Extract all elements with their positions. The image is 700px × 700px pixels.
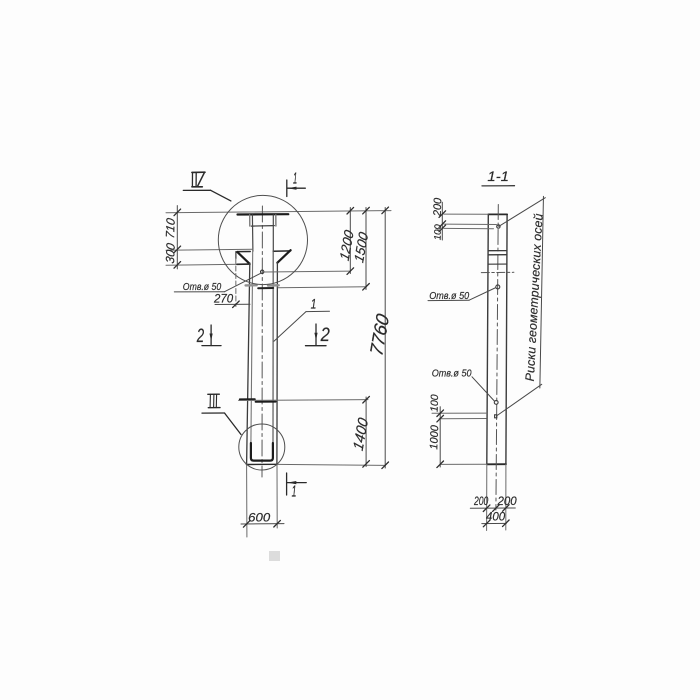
svg-text:Отв.ø 50: Отв.ø 50 <box>183 281 222 293</box>
svg-text:400: 400 <box>486 512 506 524</box>
svg-text:300: 300 <box>163 242 178 265</box>
svg-text:1400: 1400 <box>351 416 372 453</box>
svg-text:1: 1 <box>293 171 297 188</box>
svg-text:200: 200 <box>497 496 518 508</box>
svg-text:1-1: 1-1 <box>487 168 509 184</box>
svg-text:1: 1 <box>292 484 297 501</box>
svg-text:200: 200 <box>432 197 445 218</box>
svg-text:1000: 1000 <box>428 424 441 450</box>
svg-text:Отв.ø 50: Отв.ø 50 <box>432 367 472 379</box>
svg-text:2: 2 <box>320 325 330 346</box>
svg-text:200: 200 <box>473 496 488 508</box>
svg-text:7760: 7760 <box>366 311 393 359</box>
svg-text:100: 100 <box>429 394 442 412</box>
svg-text:Отв.ø 50: Отв.ø 50 <box>429 290 469 302</box>
svg-text:270: 270 <box>213 294 234 306</box>
svg-text:600: 600 <box>248 511 270 525</box>
svg-text:2: 2 <box>196 326 204 347</box>
svg-text:710: 710 <box>163 217 178 240</box>
svg-text:100: 100 <box>433 223 445 240</box>
svg-text:1: 1 <box>311 296 317 312</box>
svg-text:Риски геометрических осей: Риски геометрических осей <box>523 213 546 382</box>
